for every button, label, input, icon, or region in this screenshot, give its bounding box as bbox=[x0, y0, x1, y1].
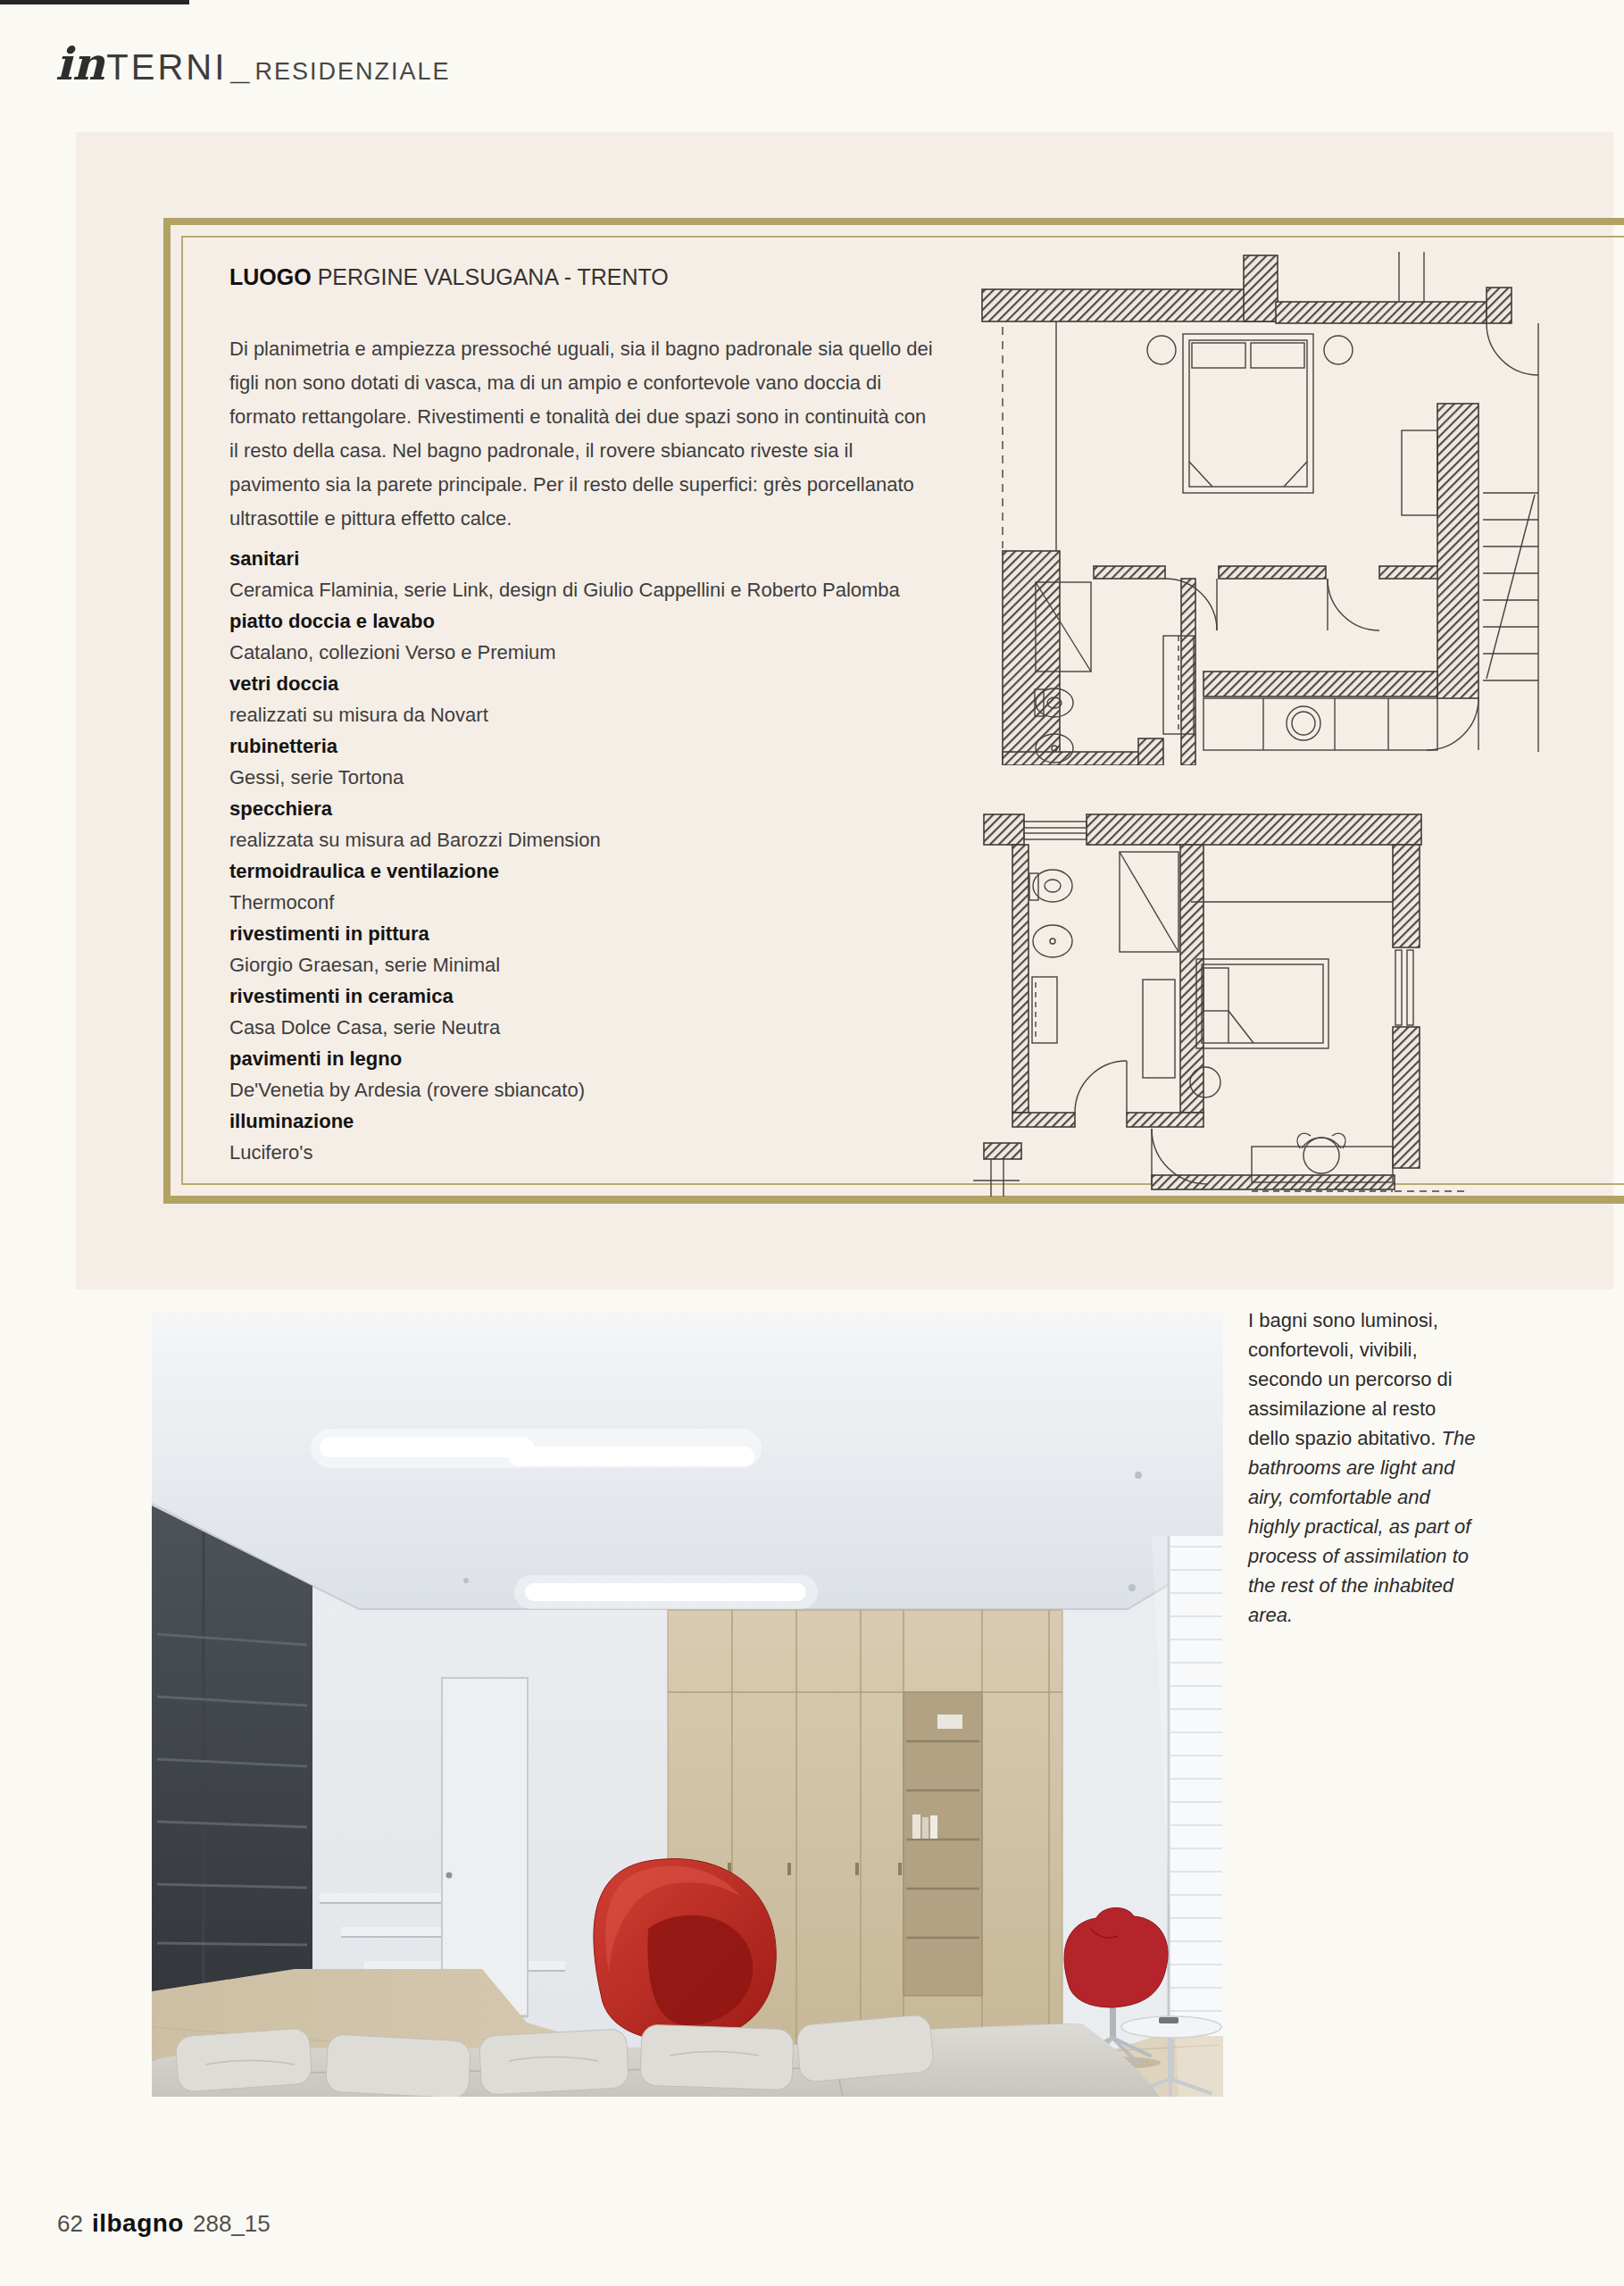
photo-living-room bbox=[152, 1313, 1223, 2097]
folio: 62 ilbagno 288_15 bbox=[57, 2209, 271, 2238]
credit-item: rubinetteriaGessi, serie Tortona bbox=[229, 730, 979, 793]
section-title: RESIDENZIALE bbox=[255, 58, 451, 86]
credit-item: termoidraulica e ventilazioneThermoconf bbox=[229, 855, 979, 918]
page-number: 62 bbox=[57, 2210, 83, 2238]
issue-number: 288_15 bbox=[193, 2210, 271, 2238]
credit-item: rivestimenti in pitturaGiorgio Graesan, … bbox=[229, 918, 979, 980]
credits-list: sanitariCeramica Flaminia, serie Link, d… bbox=[229, 543, 979, 1168]
magazine-page: inTERNI_RESIDENZIALE LUOGO PERGINE VALSU… bbox=[0, 0, 1624, 2286]
walls-hatched bbox=[982, 255, 1512, 765]
brand-italic: in bbox=[55, 38, 104, 90]
magazine-name: ilbagno bbox=[92, 2209, 184, 2238]
floor-plan-kids bbox=[966, 788, 1555, 1198]
credit-item: piatto doccia e lavaboCatalano, collezio… bbox=[229, 605, 979, 668]
interior-door bbox=[442, 1678, 528, 2016]
plan-linework bbox=[973, 822, 1466, 1197]
location-line: LUOGO PERGINE VALSUGANA - TRENTO bbox=[229, 264, 669, 290]
intro-paragraph: Di planimetria e ampiezza pressoché ugua… bbox=[229, 332, 935, 536]
credit-item: pavimenti in legnoDe'Venetia by Ardesia … bbox=[229, 1043, 979, 1105]
location-label: LUOGO bbox=[229, 264, 312, 289]
caption-italian: I bagni sono luminosi, confortevoli, viv… bbox=[1248, 1309, 1453, 1449]
scan-artifact-strip bbox=[0, 0, 189, 4]
caption-english: The bathrooms are light and airy, comfor… bbox=[1248, 1427, 1475, 1626]
credit-item: illuminazioneLucifero's bbox=[229, 1105, 979, 1168]
brand-rest: TERNI bbox=[106, 47, 227, 88]
photo-caption: I bagni sono luminosi, confortevoli, viv… bbox=[1248, 1306, 1478, 1630]
brand-separator: _ bbox=[230, 49, 249, 88]
credit-item: rivestimenti in ceramicaCasa Dolce Casa,… bbox=[229, 980, 979, 1043]
masthead: inTERNI_RESIDENZIALE bbox=[55, 38, 451, 90]
open-shelving bbox=[904, 1692, 982, 1996]
floor-plan-master bbox=[960, 252, 1540, 765]
credit-item: specchierarealizzata su misura ad Barozz… bbox=[229, 793, 979, 855]
location-value: PERGINE VALSUGANA - TRENTO bbox=[318, 264, 669, 289]
credit-item: sanitariCeramica Flaminia, serie Link, d… bbox=[229, 543, 979, 605]
bookshelf bbox=[152, 1506, 312, 1991]
walls-hatched bbox=[984, 814, 1421, 1189]
credit-item: vetri docciarealizzati su misura da Nova… bbox=[229, 668, 979, 730]
